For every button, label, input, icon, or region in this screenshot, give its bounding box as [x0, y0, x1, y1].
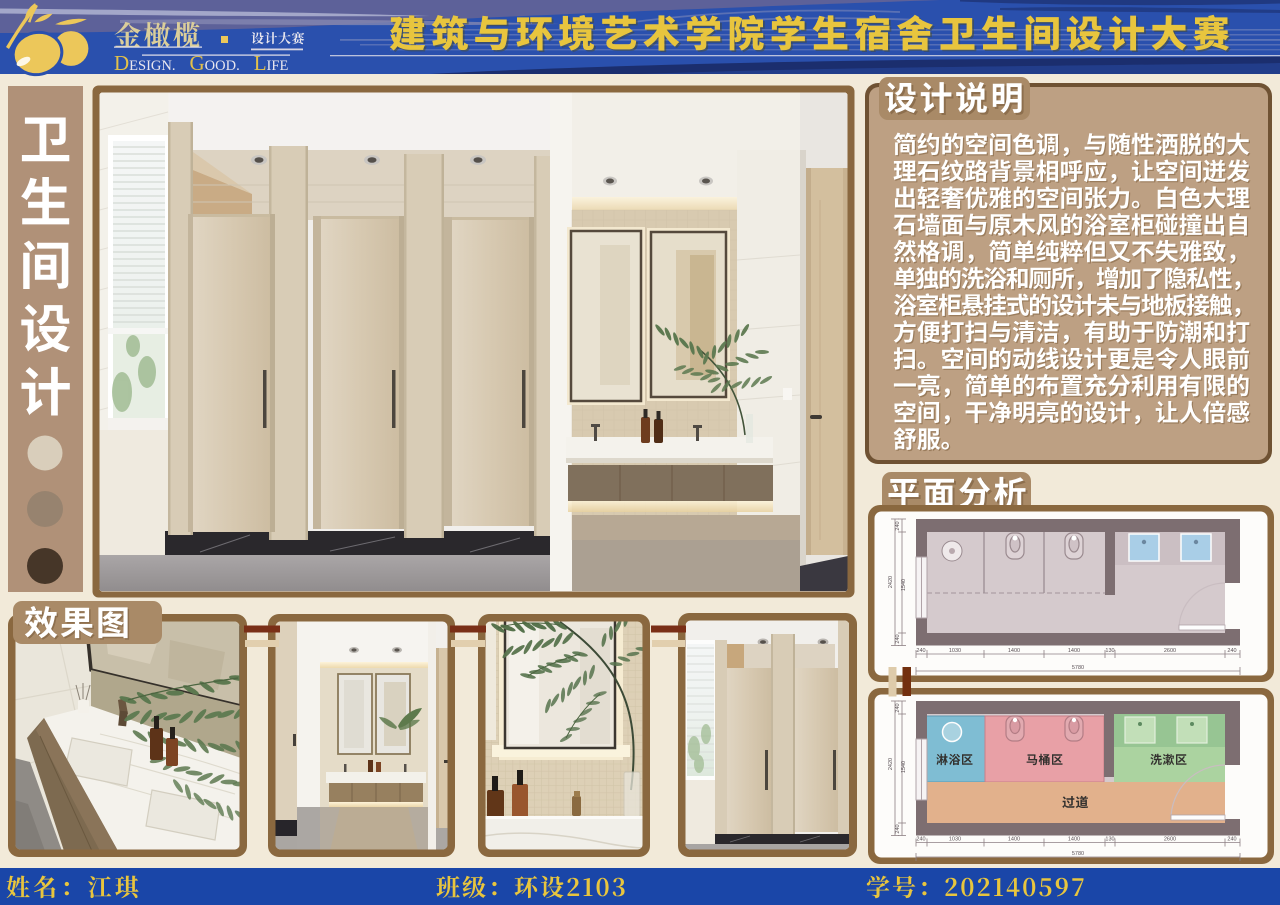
svg-text:2600: 2600	[1164, 648, 1176, 654]
svg-text:2420: 2420	[888, 576, 894, 588]
svg-text:1400: 1400	[1068, 648, 1080, 654]
svg-text:240: 240	[895, 703, 901, 712]
svg-text:240: 240	[1227, 648, 1236, 654]
svg-text:1400: 1400	[1008, 648, 1020, 654]
svg-text:240: 240	[895, 824, 901, 833]
svg-text:1540: 1540	[901, 761, 907, 773]
svg-text:1540: 1540	[901, 579, 907, 591]
svg-text:2420: 2420	[888, 758, 894, 770]
svg-text:1030: 1030	[949, 837, 961, 843]
svg-text:5780: 5780	[1072, 851, 1084, 857]
svg-text:240: 240	[895, 521, 901, 530]
svg-text:130: 130	[1105, 837, 1114, 843]
svg-text:1400: 1400	[1008, 837, 1020, 843]
svg-text:130: 130	[1105, 648, 1114, 654]
svg-text:1030: 1030	[949, 648, 961, 654]
svg-text:1400: 1400	[1068, 837, 1080, 843]
svg-text:240: 240	[916, 837, 925, 843]
svg-text:240: 240	[895, 634, 901, 643]
svg-text:5780: 5780	[1072, 665, 1084, 671]
svg-text:240: 240	[916, 648, 925, 654]
svg-text:240: 240	[1227, 837, 1236, 843]
svg-text:2600: 2600	[1164, 837, 1176, 843]
